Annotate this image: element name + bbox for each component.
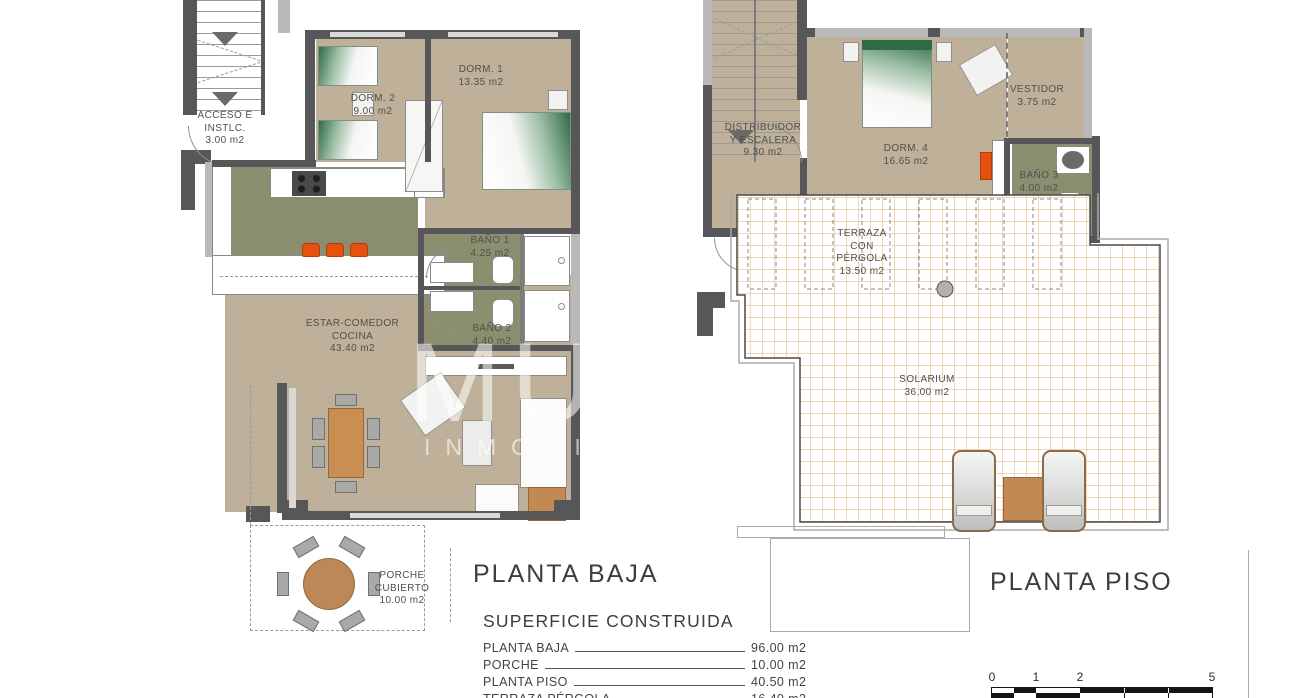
leader-line xyxy=(575,651,745,652)
kitchen-island xyxy=(212,255,445,295)
scale-tick-label: 2 xyxy=(1077,670,1084,684)
leader-line xyxy=(545,668,745,669)
room-area: 13.35 m2 xyxy=(448,77,514,90)
room-label-terraza: TERRAZA CON PÉRGOLA 13.50 m2 xyxy=(830,228,894,278)
room-area: 4.25 m2 xyxy=(460,248,520,261)
room-label-bano3: BAÑO 3 4.00 m2 xyxy=(1008,170,1070,195)
summary-label: PLANTA BAJA xyxy=(483,641,569,655)
room-name: DORM. 4 xyxy=(874,143,938,156)
single-bed xyxy=(318,120,378,160)
kitchen-counter xyxy=(212,166,232,256)
sheet-border-line xyxy=(1248,550,1249,698)
wall-pillar xyxy=(803,28,815,37)
room-name: VESTIDOR xyxy=(1006,84,1068,97)
plan-title-piso: PLANTA PISO xyxy=(990,568,1173,597)
room-name: TERRAZA CON PÉRGOLA xyxy=(830,228,894,266)
room-label-solarium: SOLARIUM 36.00 m2 xyxy=(888,374,966,399)
sun-lounger xyxy=(952,450,996,532)
down-arrow-icon xyxy=(212,32,238,46)
watermark-subtitle: INMOBILIA xyxy=(424,434,675,461)
room-name: PORCHE CUBIERTO xyxy=(373,570,431,595)
summary-label: PLANTA PISO xyxy=(483,675,568,689)
dining-chair xyxy=(367,418,380,440)
round-table xyxy=(303,558,355,610)
wardrobe xyxy=(405,100,443,192)
wall-segment xyxy=(277,383,287,513)
room-name: ESTAR-COMEDOR COCINA xyxy=(300,318,405,343)
island-centerline xyxy=(220,276,438,277)
wall-corner xyxy=(554,500,580,520)
room-area: 9.30 m2 xyxy=(722,147,804,160)
wall-segment xyxy=(571,30,580,230)
summary-row: TERRAZA PÉRGOLA 16.40 m2 xyxy=(483,689,817,698)
wall-segment xyxy=(703,0,712,85)
wall-segment xyxy=(418,228,580,234)
stove-icon xyxy=(292,171,326,196)
scale-tick-label: 1 xyxy=(1033,670,1040,684)
room-area: 9.00 m2 xyxy=(340,106,406,119)
room-area: 16.65 m2 xyxy=(874,156,938,169)
scale-bar: 0 1 2 5 xyxy=(985,670,1245,698)
scale-segment xyxy=(1036,693,1080,698)
room-name: DORM. 1 xyxy=(448,64,514,77)
shower-drain-icon xyxy=(558,257,565,264)
double-bed xyxy=(862,40,932,128)
shower-drain-icon xyxy=(558,303,565,310)
room-area: 36.00 m2 xyxy=(888,387,966,400)
summary-value: 96.00 m2 xyxy=(751,641,817,655)
scale-segment xyxy=(992,693,1014,698)
room-name: SOLARIUM xyxy=(888,374,966,387)
wall-pillar xyxy=(928,28,940,37)
porch-chair xyxy=(277,572,289,596)
room-area: 13.50 m2 xyxy=(830,266,894,279)
scale-divider xyxy=(1124,693,1125,698)
bar-stool xyxy=(350,243,368,257)
nightstand xyxy=(843,42,859,62)
room-name: DISTRIBUIDOR Y ESCALERA xyxy=(722,122,804,147)
wall-segment xyxy=(278,0,290,33)
wall-segment xyxy=(261,0,265,115)
sliding-door xyxy=(350,513,500,518)
window-wall xyxy=(803,28,1092,37)
room-label-dorm4: DORM. 4 16.65 m2 xyxy=(874,143,938,168)
outdoor-table xyxy=(1003,477,1043,521)
room-label-dorm2: DORM. 2 9.00 m2 xyxy=(340,93,406,118)
wall-segment xyxy=(1010,138,1100,144)
dining-table xyxy=(328,408,364,478)
room-label-porche: PORCHE CUBIERTO 10.00 m2 xyxy=(373,570,431,608)
room-area: 4.00 m2 xyxy=(1008,183,1070,196)
nightstand xyxy=(548,90,568,110)
window xyxy=(448,32,558,37)
solarium-floor xyxy=(737,195,1160,522)
scale-divider xyxy=(1168,693,1169,698)
room-label-bano1: BAÑO 1 4.25 m2 xyxy=(460,235,520,260)
scale-segment xyxy=(1080,693,1212,698)
room-label-vestidor: VESTIDOR 3.75 m2 xyxy=(1006,84,1068,109)
scale-tick-label: 0 xyxy=(989,670,996,684)
floor-plan-sheet: ACCESO E INSTLC. 3.00 m2 DORM. 2 9.00 m2… xyxy=(0,0,1290,698)
solarium-terrace-drawing xyxy=(690,185,1185,540)
summary-row: PLANTA PISO 40.50 m2 xyxy=(483,672,817,689)
bar-stool xyxy=(326,243,344,257)
plan-title-baja: PLANTA BAJA xyxy=(473,560,659,589)
watermark-logo: MUN xyxy=(408,318,693,447)
nightstand xyxy=(936,42,952,62)
lounger-cushion xyxy=(956,505,992,516)
leader-line xyxy=(574,685,745,686)
summary-value: 10.00 m2 xyxy=(751,658,817,672)
down-arrow-icon xyxy=(212,92,238,106)
single-bed xyxy=(318,46,378,86)
dining-chair xyxy=(335,481,357,493)
room-label-distribuidor: DISTRIBUIDOR Y ESCALERA 9.30 m2 xyxy=(722,122,804,160)
room-label-dorm1: DORM. 1 13.35 m2 xyxy=(448,64,514,89)
room-area: 43.40 m2 xyxy=(300,343,405,356)
window xyxy=(289,388,296,508)
scale-tick-label: 5 xyxy=(1209,670,1216,684)
headboard xyxy=(862,40,932,50)
summary-title: SUPERFICIE CONSTRUIDA xyxy=(483,611,817,632)
bar-stool xyxy=(302,243,320,257)
wall-segment xyxy=(425,38,431,162)
room-name: BAÑO 3 xyxy=(1008,170,1070,183)
dining-chair xyxy=(312,418,325,440)
room-name: DORM. 2 xyxy=(340,93,406,106)
toilet xyxy=(492,256,514,284)
wall-segment xyxy=(183,0,197,115)
summary-value: 40.50 m2 xyxy=(751,675,817,689)
dining-chair xyxy=(312,446,325,468)
scale-segment xyxy=(1014,693,1036,698)
dining-chair xyxy=(335,394,357,406)
wall-segment xyxy=(212,160,316,167)
summary-row: PLANTA BAJA 96.00 m2 xyxy=(483,638,817,655)
plot-dashed-line xyxy=(450,548,451,622)
plot-dashed-line xyxy=(250,385,251,525)
window xyxy=(330,32,405,37)
summary-value: 16.40 m2 xyxy=(751,692,817,698)
wall-segment xyxy=(205,162,212,257)
room-name: BAÑO 1 xyxy=(460,235,520,248)
summary-label: PORCHE xyxy=(483,658,539,672)
summary-row: PORCHE 10.00 m2 xyxy=(483,655,817,672)
room-name: ACCESO E INSTLC. xyxy=(190,110,260,135)
wall-segment xyxy=(305,30,315,167)
lounger-cushion xyxy=(1046,505,1082,516)
summary-label: TERRAZA PÉRGOLA xyxy=(483,692,611,698)
drain-circle-icon xyxy=(937,281,953,297)
double-bed xyxy=(482,112,571,190)
room-label-estar: ESTAR-COMEDOR COCINA 43.40 m2 xyxy=(300,318,405,356)
room-area: 10.00 m2 xyxy=(373,595,431,608)
surface-summary-table: SUPERFICIE CONSTRUIDA PLANTA BAJA 96.00 … xyxy=(483,611,817,698)
wall-segment xyxy=(797,0,807,100)
sink-icon xyxy=(1062,151,1084,169)
wall-segment xyxy=(181,164,195,210)
room-area: 3.75 m2 xyxy=(1006,97,1068,110)
dining-chair xyxy=(367,446,380,468)
room-label-acceso: ACCESO E INSTLC. 3.00 m2 xyxy=(190,110,260,148)
wall-segment xyxy=(424,286,520,290)
room-area: 3.00 m2 xyxy=(190,135,260,148)
sun-lounger xyxy=(1042,450,1086,532)
orange-chair xyxy=(980,152,992,180)
window xyxy=(1084,28,1092,138)
